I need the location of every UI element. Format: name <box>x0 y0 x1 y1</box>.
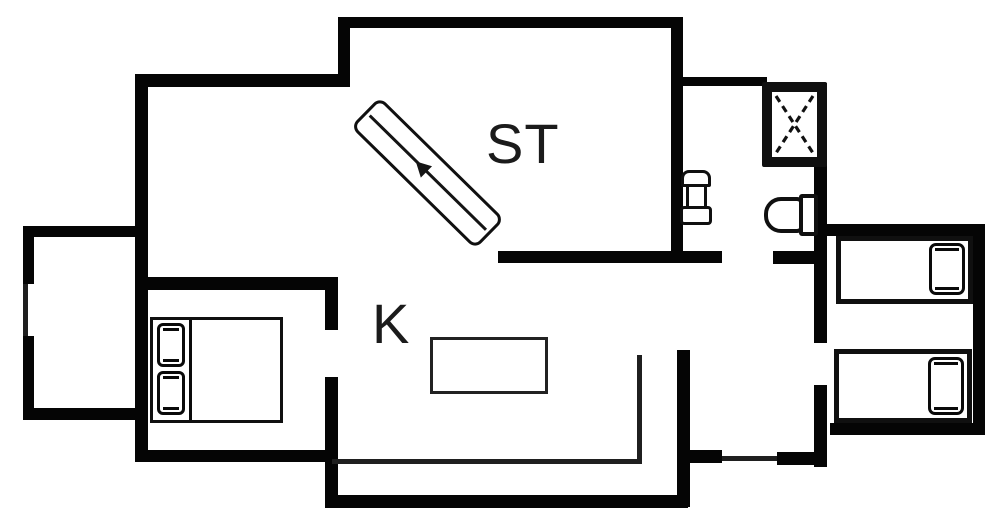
pillow-seam <box>935 248 959 251</box>
pillow-seam <box>163 359 179 362</box>
pillow-seam <box>163 328 179 331</box>
kitchen-counter-front <box>332 459 640 464</box>
washbasin-base <box>680 206 712 225</box>
shower-stall <box>762 82 827 167</box>
outer-wall-left <box>135 74 148 462</box>
wall-st-right <box>671 17 683 263</box>
shower-cross-icon <box>772 92 817 157</box>
kitchen-counter-side <box>637 355 642 464</box>
wall-kitchen-south <box>330 495 688 508</box>
wall-upper-left-top <box>135 74 350 87</box>
wall-bedroom1-north <box>135 277 338 290</box>
single-bed <box>836 236 973 304</box>
wall-kitchen-west <box>325 377 338 508</box>
wall-bedroom2-east <box>973 224 985 435</box>
pillow <box>928 357 964 415</box>
wall-bath-door-stub <box>773 251 817 264</box>
wall-hall-south-left <box>690 450 722 463</box>
floor-plan: ST K <box>0 0 1000 517</box>
toilet-tank <box>799 194 818 236</box>
pillow <box>157 323 185 367</box>
wall-annex-north <box>25 226 137 237</box>
pillow-seam <box>935 287 959 290</box>
wall-annex-west-upper <box>23 226 34 284</box>
window-annex-west <box>23 284 28 336</box>
wall-st-top <box>338 17 683 28</box>
kitchen-table <box>430 337 548 394</box>
pillow <box>157 371 185 415</box>
loft-stair <box>350 97 504 250</box>
stair-divider <box>369 114 487 230</box>
wall-bath-top <box>683 77 767 86</box>
wall-annex-south <box>23 408 137 420</box>
pillow-seam <box>934 407 958 410</box>
pillow-seam <box>163 407 179 410</box>
bed-divider <box>189 320 192 420</box>
room-label-kitchen: K <box>372 296 410 352</box>
door-threshold-south <box>722 456 777 461</box>
pillow <box>929 243 965 295</box>
single-bed <box>834 349 972 423</box>
room-label-living-room: ST <box>486 116 560 172</box>
toilet-bowl <box>764 197 804 233</box>
wall-hall-south-right <box>777 452 827 465</box>
double-bed <box>150 317 283 423</box>
wall-bedroom1-south <box>135 450 335 462</box>
wall-bedroom2-north <box>822 224 985 236</box>
pillow-seam <box>934 362 958 365</box>
pillow-seam <box>163 376 179 379</box>
wall-bedroom2-south <box>830 423 975 435</box>
wall-kitchen-east <box>677 350 690 507</box>
wall-st-bottom <box>498 251 722 263</box>
wall-bedroom2-west-upper <box>814 228 827 343</box>
